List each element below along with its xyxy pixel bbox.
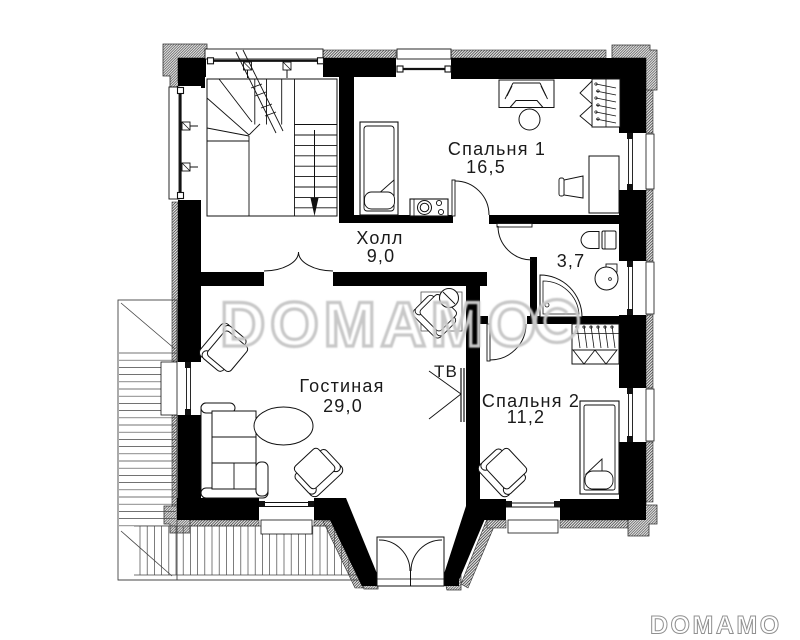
- svg-text:Холл: Холл: [356, 228, 403, 248]
- svg-text:DOMAMO: DOMAMO: [220, 290, 541, 360]
- svg-text:29,0: 29,0: [323, 396, 363, 416]
- svg-text:Гостиная: Гостиная: [299, 376, 384, 396]
- svg-text:9,0: 9,0: [367, 246, 396, 266]
- svg-text:16,5: 16,5: [466, 157, 506, 177]
- svg-text:11,2: 11,2: [507, 407, 546, 427]
- svg-text:ТВ: ТВ: [434, 362, 458, 381]
- svg-text:3,7: 3,7: [557, 251, 586, 271]
- svg-text:DOMAMO: DOMAMO: [650, 612, 782, 640]
- svg-text:Спальня 1: Спальня 1: [448, 139, 546, 159]
